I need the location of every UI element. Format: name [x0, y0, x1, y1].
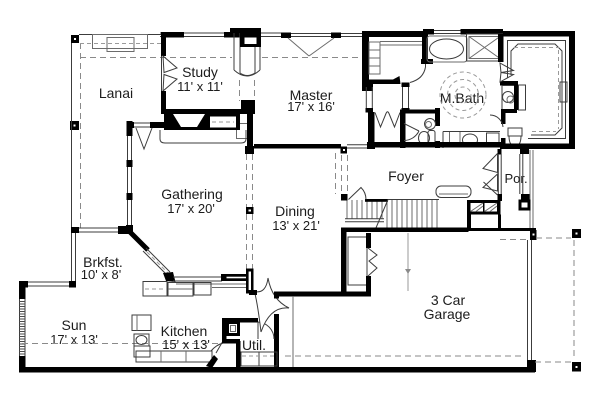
svg-text:17' x 13': 17' x 13' — [50, 332, 98, 347]
svg-text:11' x 11': 11' x 11' — [177, 79, 223, 94]
svg-text:Garage: Garage — [424, 306, 471, 322]
svg-text:Util.: Util. — [242, 337, 266, 353]
svg-text:17' x 16': 17' x 16' — [287, 99, 335, 114]
svg-text:Foyer: Foyer — [388, 168, 424, 184]
svg-text:13' x 21': 13' x 21' — [272, 218, 320, 233]
svg-text:Por.: Por. — [504, 171, 527, 186]
svg-text:10' x 8': 10' x 8' — [81, 267, 121, 282]
svg-text:Study: Study — [182, 64, 218, 80]
svg-text:Lanai: Lanai — [99, 85, 133, 101]
svg-text:Gathering: Gathering — [161, 186, 222, 202]
svg-text:Sun: Sun — [62, 317, 87, 333]
svg-text:Dining: Dining — [275, 203, 315, 219]
svg-text:15' x 13': 15' x 13' — [162, 337, 210, 352]
svg-text:17' x 20': 17' x 20' — [167, 201, 215, 216]
svg-text:M.Bath: M.Bath — [440, 90, 484, 106]
